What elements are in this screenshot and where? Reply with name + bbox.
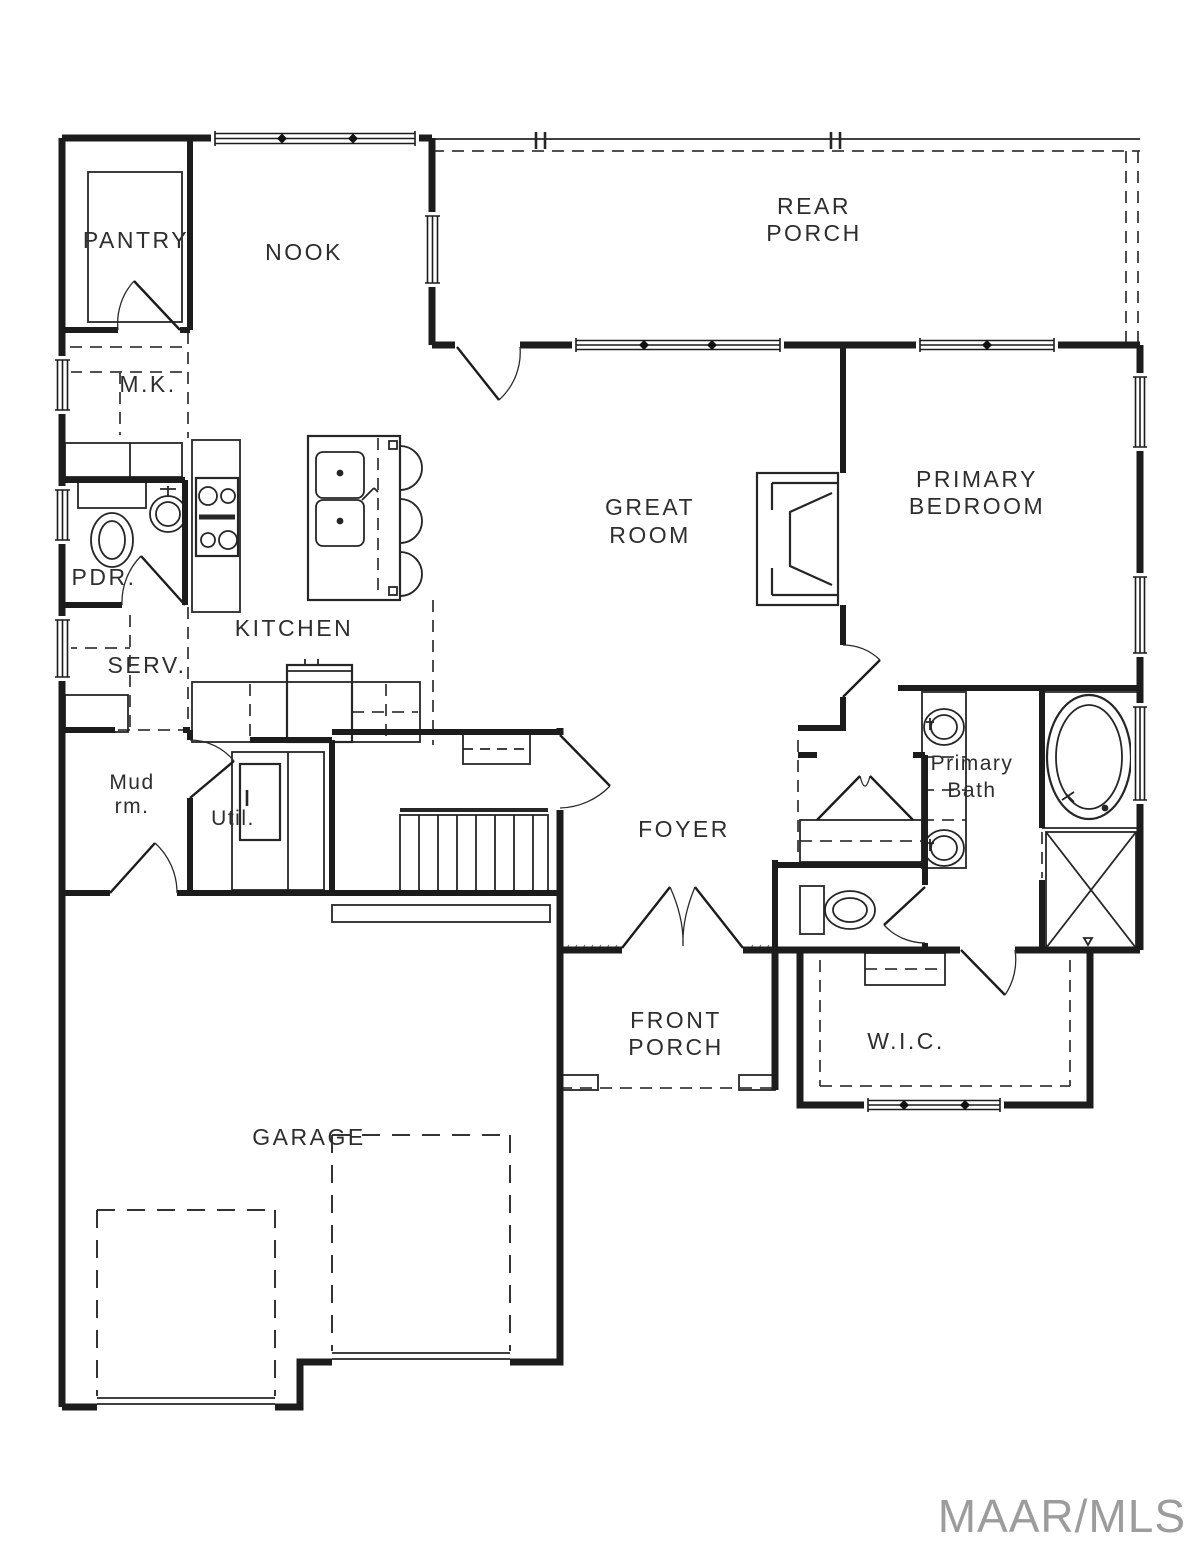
nook-top-window (215, 131, 415, 146)
room-label-mud-1: Mud (109, 771, 154, 794)
room-label-garage: GARAGE (252, 1124, 365, 1150)
bedroom-right-window (1133, 577, 1147, 653)
room-label-great-room-2: ROOM (609, 522, 691, 548)
great-room-window (576, 338, 780, 352)
left-window (55, 360, 70, 410)
room-label-pantry: PANTRY (83, 227, 189, 253)
room-label-util: Util. (211, 807, 255, 830)
room-label-nook: NOOK (265, 239, 343, 265)
room-label-pdr: PDR. (72, 564, 137, 590)
room-label-front-porch-2: PORCH (628, 1034, 724, 1060)
floor-plan-page: PANTRY NOOK REAR PORCH M.K. PDR. KITCHEN… (0, 0, 1200, 1553)
room-label-primary-bath-2: Bath (947, 779, 996, 802)
room-label-rear-porch-1: REAR (777, 193, 851, 219)
left-window (55, 490, 70, 540)
room-label-kitchen: KITCHEN (235, 615, 353, 641)
left-window (55, 620, 70, 677)
nook-side-window (425, 216, 440, 283)
room-label-front-porch-1: FRONT (630, 1007, 722, 1033)
room-label-primary-bedroom-2: BEDROOM (909, 493, 1045, 519)
floor-plan: PANTRY NOOK REAR PORCH M.K. PDR. KITCHEN… (0, 0, 1200, 1553)
room-label-mud-2: rm. (115, 795, 150, 818)
room-label-foyer: FOYER (638, 816, 730, 842)
room-label-great-room-1: GREAT (605, 494, 695, 520)
room-label-primary-bedroom-1: PRIMARY (916, 466, 1038, 492)
bedroom-right-window (1133, 377, 1147, 447)
room-label-mk: M.K. (119, 371, 176, 397)
bath-window (1133, 707, 1147, 800)
room-label-serv: SERV. (108, 652, 187, 678)
mls-watermark: MAAR/MLS (938, 1490, 1186, 1542)
room-label-wic: W.I.C. (867, 1028, 945, 1054)
room-label-rear-porch-2: PORCH (766, 220, 862, 246)
wic-window (868, 1098, 1000, 1112)
room-label-primary-bath-1: Primary (931, 752, 1014, 775)
